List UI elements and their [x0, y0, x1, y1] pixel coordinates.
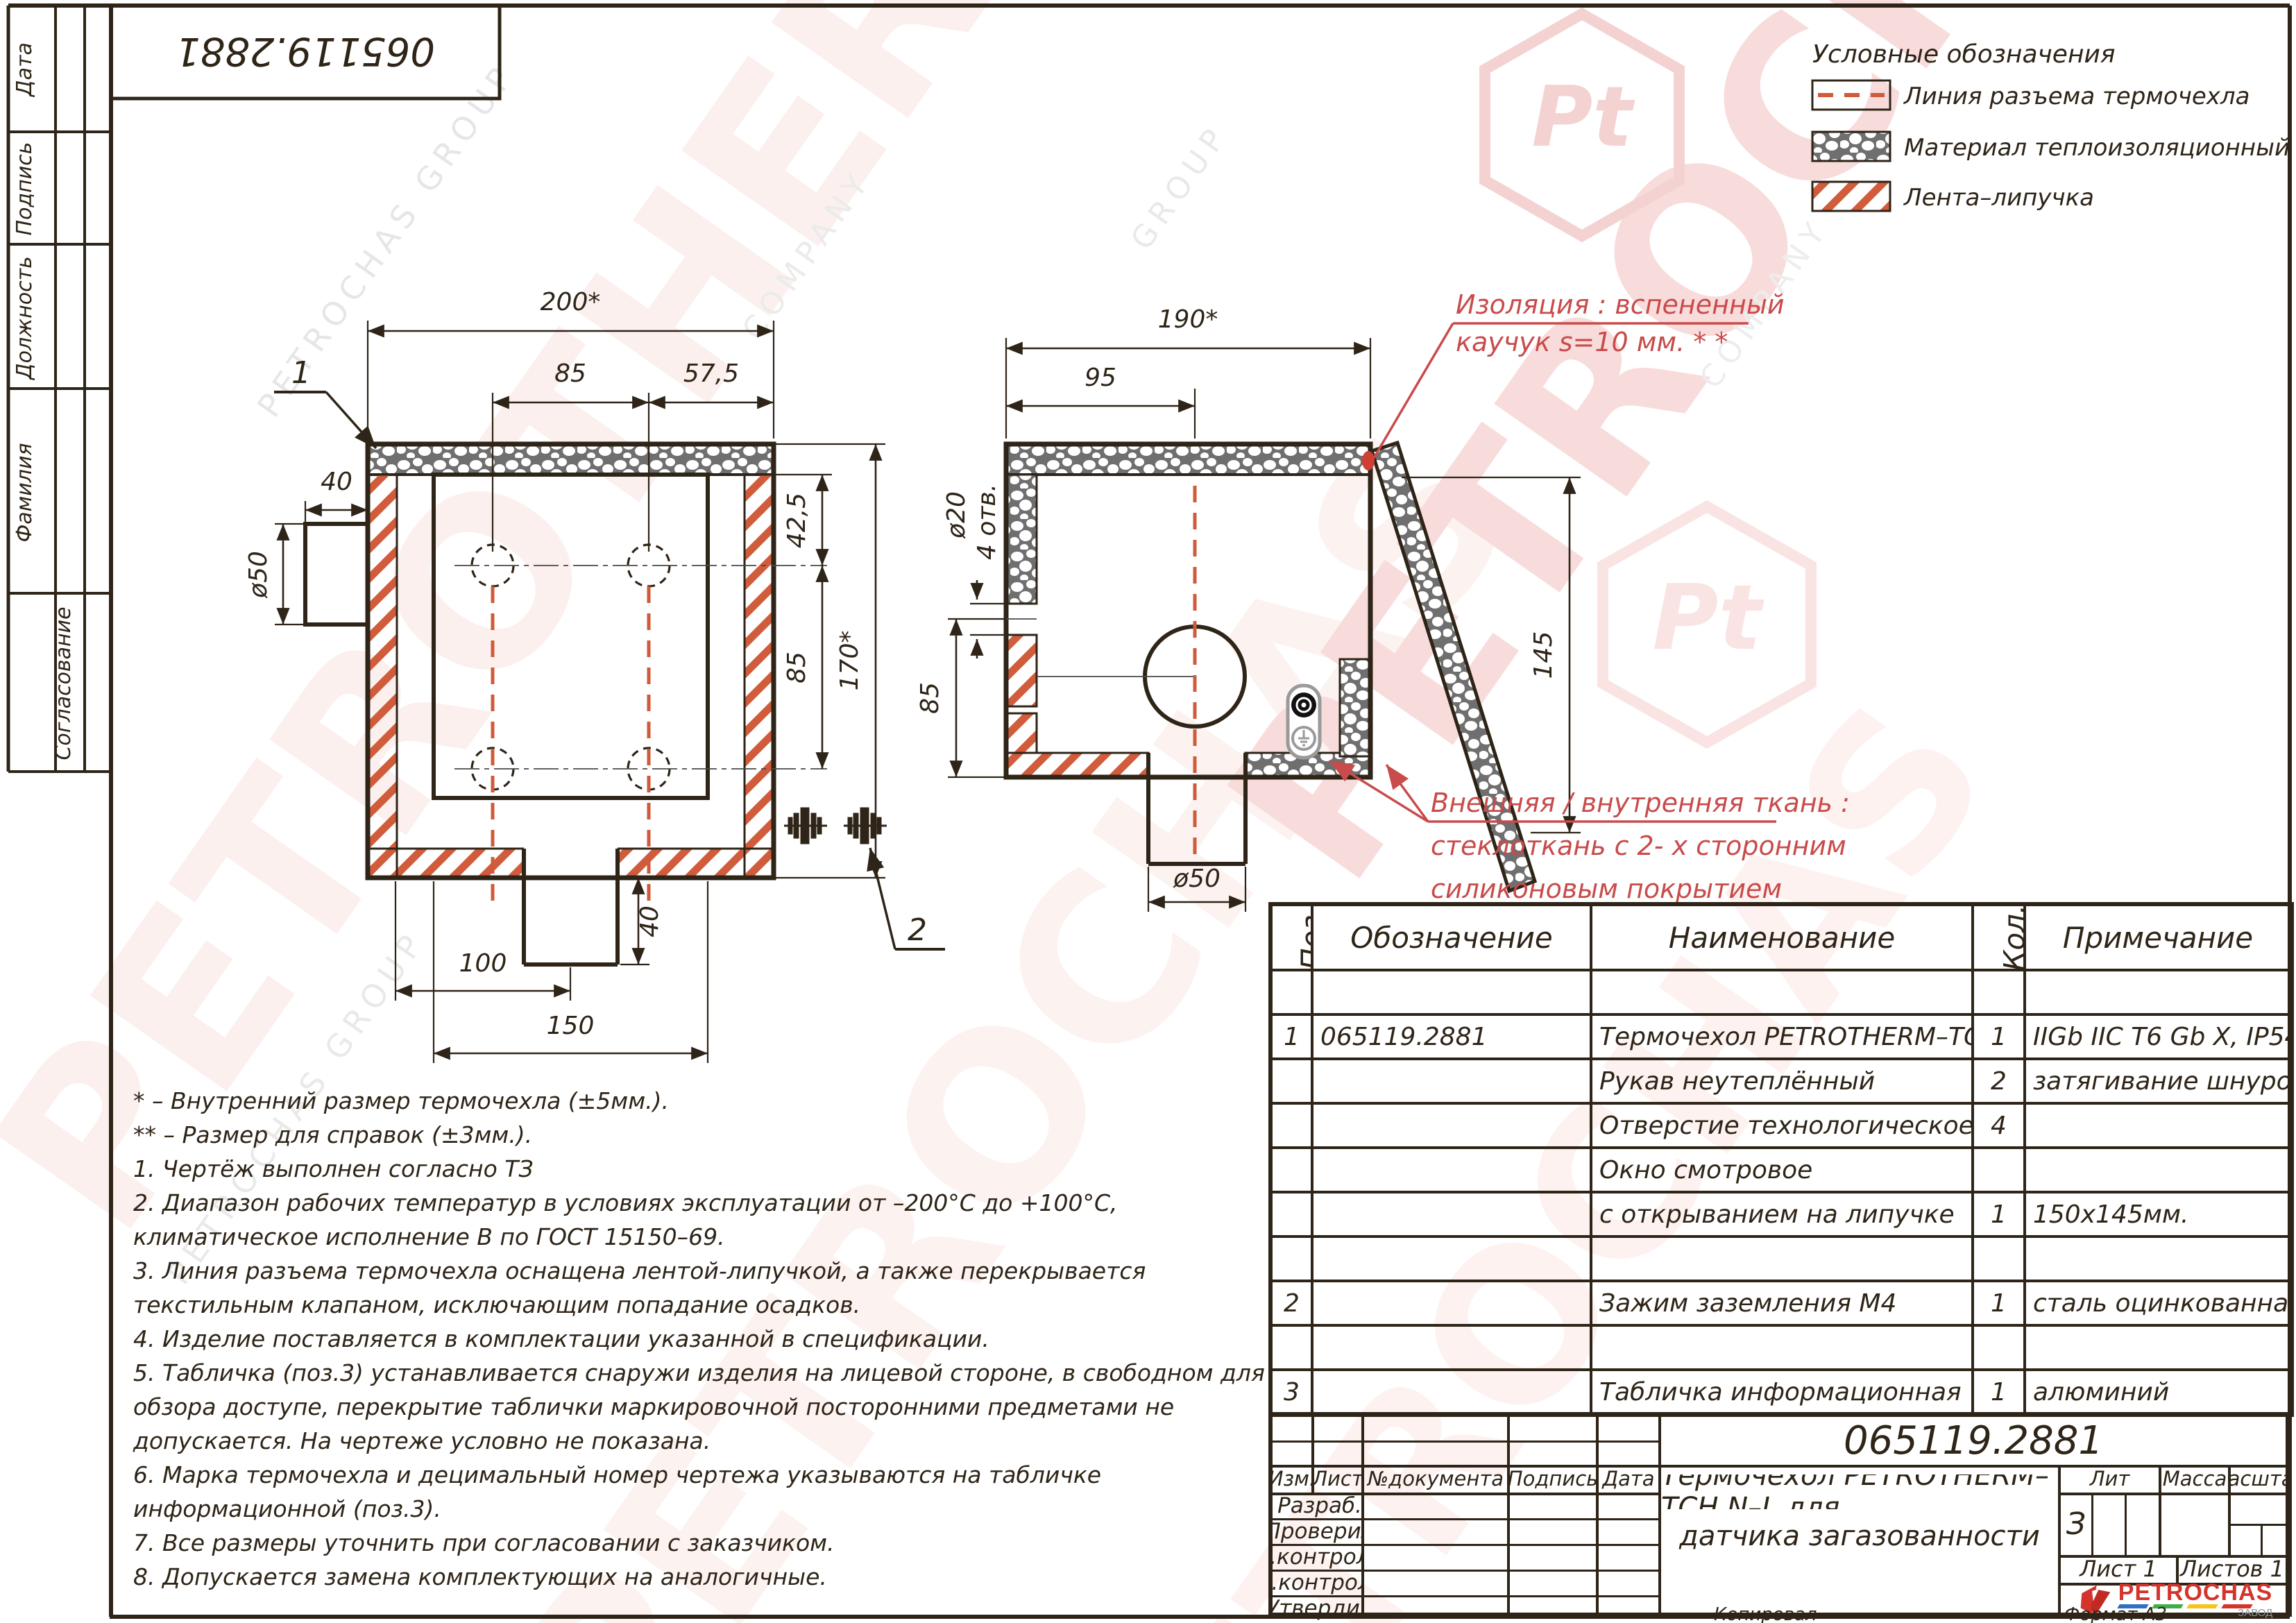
legend-title: Условные обозначения	[1812, 40, 2116, 69]
cell: Табличка информационная	[1591, 1370, 1973, 1415]
doc-number-box: 065119.2881	[111, 6, 500, 99]
cell	[1591, 970, 1973, 1014]
legend-item-label: Лента–липучка	[1903, 184, 2094, 212]
table-row: 2Зажим заземления М41сталь оцинкованная	[1270, 1281, 2292, 1325]
cell: 3	[1270, 1370, 1312, 1415]
cell	[1312, 1325, 1591, 1370]
spec-header-row: Поз. Обозначение Наименование Кол. Приме…	[1270, 904, 2292, 970]
table-row	[1270, 1325, 2292, 1370]
cell	[1312, 1192, 1591, 1237]
cell	[2025, 1103, 2292, 1148]
side-extension-lines	[948, 338, 1581, 912]
front-view: 200* 85 57,5 40 ø50 42,5 85 170* 40 100 …	[244, 288, 945, 1063]
bolt-icon	[784, 808, 827, 844]
cell	[1973, 970, 2025, 1014]
note-star: * – Внутренний размер термочехла (±5мм.)…	[133, 1084, 1275, 1118]
cell	[1312, 1281, 1591, 1325]
col-sign: Подпись	[1510, 1465, 1596, 1493]
table-row: 3Табличка информационная1алюминий	[1270, 1370, 2292, 1415]
cell	[1270, 970, 1312, 1014]
dim-front-stub-length: 40	[636, 906, 664, 937]
spec-header-pos: Поз.	[1270, 904, 1312, 970]
cell	[1973, 1148, 2025, 1192]
fabric-annotation: Внешняя / внутренняя ткань : стеклоткань…	[1329, 760, 1850, 904]
side-dimension-lines	[956, 348, 1570, 902]
cell: сталь оцинкованная	[2025, 1281, 2292, 1325]
col-list: Лист	[1314, 1465, 1361, 1493]
cell: с открыванием на липучке	[1591, 1192, 1973, 1237]
table-row: Рукав неутеплённый2затягивание шнуром	[1270, 1059, 2292, 1103]
side-flap	[1372, 443, 1535, 891]
cell: 1	[1973, 1281, 2025, 1325]
col-izm: Изм.	[1273, 1465, 1311, 1493]
dim-side-center: 95	[1085, 364, 1116, 392]
cell	[2025, 1325, 2292, 1370]
title-line1: Термочехол PETROTHERM–TCH.N–L для	[1661, 1475, 2058, 1509]
doc-number-rotated: 065119.2881	[176, 28, 435, 74]
strip-label-date: Дата	[12, 42, 37, 98]
role-developed: Разраб.	[1273, 1493, 1361, 1518]
drawing-sheet: PETROTHERM PETROCHAS PETROCHAS PETROCHAS…	[0, 0, 2296, 1623]
spec-header-qty: Кол.	[1973, 904, 2025, 970]
dim-side-hole-count: 4 отв.	[973, 484, 1001, 560]
legend-swatch-foam	[1812, 132, 1890, 161]
spec-header-designation: Обозначение	[1312, 904, 1591, 970]
dim-side-flap: 145	[1529, 631, 1558, 679]
cell	[2025, 970, 2292, 1014]
role-checked: Проверил	[1273, 1518, 1361, 1544]
notes-block: * – Внутренний размер термочехла (±5мм.)…	[133, 1084, 1275, 1594]
note-2: 2. Диапазон рабочих температур в условия…	[133, 1186, 1275, 1254]
fabric-note-line3: силиконовым покрытием	[1431, 874, 1782, 904]
fabric-note-line1: Внешняя / внутренняя ткань :	[1431, 788, 1850, 818]
dim-side-hole-span: 85	[916, 682, 944, 714]
dim-front-hole-span: 85	[554, 359, 586, 388]
role-tcontrol: Т.контроль	[1273, 1544, 1361, 1570]
note-8: 8. Допускается замена комплектующих на а…	[133, 1560, 1275, 1594]
spec-header-note: Примечание	[2025, 904, 2292, 970]
dim-front-stub-center: 100	[459, 949, 507, 978]
cell	[1270, 1059, 1312, 1103]
note-3: 3. Линия разъема термочехла оснащена лен…	[133, 1254, 1275, 1322]
dim-front-stub-edge: 150	[547, 1012, 595, 1040]
balloon-2-label: 2	[908, 912, 927, 948]
cell	[1312, 1059, 1591, 1103]
cell	[1312, 1237, 1591, 1281]
cell	[1312, 1148, 1591, 1192]
cell	[1270, 1325, 1312, 1370]
table-row: Отверстие технологическое4	[1270, 1103, 2292, 1148]
spec-header-name: Наименование	[1591, 904, 1973, 970]
legend-item-label: Материал теплоизоляционный термочехла	[1904, 134, 2296, 162]
title-line2: датчика загазованности	[1661, 1519, 2058, 1554]
cell: Отверстие технологическое	[1591, 1103, 1973, 1148]
legend-item-label: Линия разъема термочехла	[1903, 83, 2250, 110]
cell: 2	[1973, 1059, 2025, 1103]
insulation-annotation: Изоляция : вспененный каучук s=10 мм. * …	[1362, 289, 1785, 470]
cell	[1312, 1370, 1591, 1415]
cell: 1	[1270, 1014, 1312, 1059]
note-doublestar: ** – Размер для справок (±3мм.).	[133, 1118, 1275, 1152]
legend-swatch-velcro	[1812, 182, 1890, 211]
table-row	[1270, 970, 2292, 1014]
cell	[1312, 970, 1591, 1014]
strip-label-approval: Согласование	[51, 606, 76, 760]
dim-side-hole-dia: ø20	[942, 491, 971, 539]
titleblock-doc-number: 065119.2881	[1661, 1416, 2286, 1465]
dim-front-top-to-hole: 42,5	[783, 493, 811, 548]
insulation-note-line2: каучук s=10 мм. * *	[1456, 327, 1728, 357]
cell	[2025, 1237, 2292, 1281]
dim-side-width: 190*	[1158, 305, 1218, 334]
note-5: 5. Табличка (поз.3) устанавливается снар…	[133, 1356, 1275, 1458]
mass-header: Масса	[2161, 1465, 2228, 1493]
dim-front-width: 200*	[541, 288, 601, 316]
cell: IIGb IIC T6 Gb X, IP54	[2025, 1014, 2292, 1059]
cell: алюминий	[2025, 1370, 2292, 1415]
dim-front-hole-edge: 57,5	[683, 359, 739, 388]
spec-table: Поз. Обозначение Наименование Кол. Приме…	[1268, 902, 2294, 1417]
lit-value: З	[2061, 1493, 2091, 1555]
strip-label-position: Должность	[12, 256, 37, 381]
table-row: 1065119.2881Термочехол PETROTHERM–TCH.N–…	[1270, 1014, 2292, 1059]
cell	[1973, 1325, 2025, 1370]
note-6: 6. Марка термочехла и децимальный номер …	[133, 1458, 1275, 1526]
fabric-note-line2: стеклоткань с 2- х сторонним	[1431, 831, 1846, 861]
note-1: 1. Чертёж выполнен согласно ТЗ	[133, 1152, 1275, 1186]
cell	[1591, 1237, 1973, 1281]
front-holes	[472, 545, 670, 790]
logo-name: PETROCHAS	[2118, 1582, 2272, 1603]
footer-format: Формат А3	[2064, 1604, 2167, 1623]
dim-front-pipe-length: 40	[321, 468, 352, 496]
strip-label-surname: Фамилия	[12, 443, 37, 542]
bolt-icon	[844, 808, 887, 844]
cell: 1	[1973, 1370, 2025, 1415]
cell	[1270, 1148, 1312, 1192]
cell	[1312, 1103, 1591, 1148]
cell	[1973, 1237, 2025, 1281]
dim-side-stub-dia: ø50	[1173, 865, 1221, 893]
cell	[1270, 1103, 1312, 1148]
note-4: 4. Изделие поставляется в комплектации у…	[133, 1322, 1275, 1356]
footer-copied: Копировал	[1714, 1604, 1817, 1623]
insulation-note-line1: Изоляция : вспененный	[1456, 289, 1785, 320]
ground-clamp-icon	[1288, 686, 1320, 758]
title-block: 065119.2881 Изм. Лист №документа Подпись…	[1268, 1412, 2290, 1617]
cell: 1	[1973, 1192, 2025, 1237]
cell: Термочехол PETROTHERM–TCH.N–L	[1591, 1014, 1973, 1059]
cell	[2025, 1148, 2292, 1192]
cell: Рукав неутеплённый	[1591, 1059, 1973, 1103]
cell: 4	[1973, 1103, 2025, 1148]
cell: 065119.2881	[1312, 1014, 1591, 1059]
col-date: Дата	[1599, 1465, 1658, 1493]
lit-header: Лит	[2061, 1465, 2159, 1493]
dim-front-height: 170*	[835, 631, 864, 691]
cell: 2	[1270, 1281, 1312, 1325]
legend: Условные обозначения Линия разъема термо…	[1812, 40, 2296, 212]
col-doc: №документа	[1364, 1465, 1507, 1493]
note-7: 7. Все размеры уточнить при согласовании…	[133, 1526, 1275, 1560]
role-ncontrol: Н.контроль	[1273, 1570, 1361, 1595]
dim-front-pipe-dia: ø50	[244, 551, 273, 599]
sheets-total: Листов 1	[2179, 1555, 2286, 1583]
front-left-pipe	[305, 524, 368, 624]
cell: затягивание шнуром	[2025, 1059, 2292, 1103]
logo-factory-label: ЗАВОД	[2238, 1608, 2272, 1618]
cell: 150х145мм.	[2025, 1192, 2292, 1237]
table-row: Окно смотровое	[1270, 1148, 2292, 1192]
cell: Зажим заземления М4	[1591, 1281, 1973, 1325]
balloon-1-label: 1	[291, 355, 311, 391]
sheet-number: Лист 1	[2061, 1555, 2176, 1583]
table-row: с открыванием на липучке1150х145мм.	[1270, 1192, 2292, 1237]
table-row	[1270, 1237, 2292, 1281]
insulation-marker-dot	[1362, 451, 1375, 470]
role-approved: Утвердил	[1273, 1595, 1361, 1621]
cell: 1	[1973, 1014, 2025, 1059]
cell	[1270, 1237, 1312, 1281]
cell	[1591, 1325, 1973, 1370]
scale-header: Масштаб	[2231, 1465, 2286, 1493]
cell	[1270, 1192, 1312, 1237]
dim-front-hole-vspan: 85	[783, 652, 811, 683]
strip-label-signature: Подпись	[12, 142, 37, 236]
cell: Окно смотровое	[1591, 1148, 1973, 1192]
